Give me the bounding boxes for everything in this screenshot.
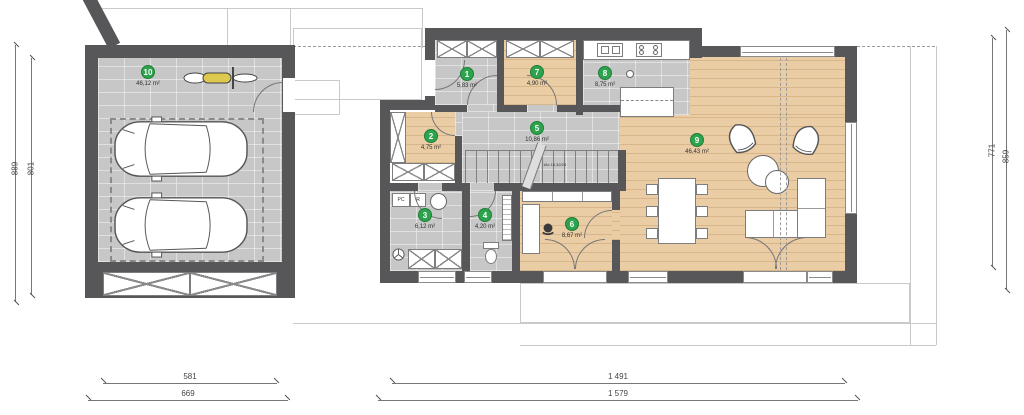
roof-outline-right <box>936 46 937 345</box>
roof-outline-line <box>290 8 291 46</box>
partition <box>618 150 626 191</box>
wardrobe-band <box>522 191 612 202</box>
door-opening-floor <box>527 105 557 112</box>
door-opening-floor <box>455 112 462 136</box>
appliance-pc-label: PC <box>392 193 410 207</box>
dining-chair <box>696 184 708 195</box>
room-area-5: 10,86 m² <box>513 137 561 143</box>
house-wall-bottom <box>456 271 464 283</box>
house-wall-bottom <box>668 271 743 283</box>
wardrobe <box>467 40 497 58</box>
house-wall-right <box>845 46 857 122</box>
window <box>845 122 857 214</box>
partition <box>497 105 527 112</box>
room-badge-8: 8 <box>598 66 612 80</box>
room-area-10: 46,12 m² <box>124 81 172 87</box>
house-wall-top <box>425 28 702 40</box>
toilet-tank <box>483 242 499 249</box>
room-area-6: 8,67 m² <box>548 233 596 239</box>
dining-chair <box>696 228 708 239</box>
partition <box>497 40 504 105</box>
room-area-3: 6,12 m² <box>401 224 449 230</box>
house-wall-bottom <box>607 271 628 283</box>
room-area-7: 4,90 m² <box>513 81 561 87</box>
house-wall-top <box>690 46 740 57</box>
window <box>418 271 456 283</box>
partition <box>512 183 520 271</box>
house-wall-bottom <box>833 271 857 283</box>
house-wall-bottom <box>492 271 543 283</box>
stove-burner <box>639 50 644 55</box>
partition <box>455 136 462 183</box>
room-badge-2: 2 <box>424 129 438 143</box>
partition <box>435 105 467 112</box>
room-badge-7: 7 <box>530 65 544 79</box>
window <box>464 271 492 283</box>
terrace-outline <box>520 283 910 323</box>
wardrobe <box>392 163 424 181</box>
roof-outline-line <box>422 8 423 48</box>
appliance-r-label: R <box>410 193 426 207</box>
wardrobe <box>540 40 574 58</box>
partition <box>380 183 418 191</box>
zone-dashed-line <box>786 58 787 270</box>
floor-plan: 18x 18,32/25 PC R 1 5,83 m² 2 4,75 <box>0 0 1024 415</box>
room-area-8: 8,75 m² <box>581 82 629 88</box>
house-wall-left-lower <box>380 100 390 283</box>
door-opening-floor <box>467 105 497 112</box>
entry-door-opening <box>425 60 435 96</box>
wardrobe <box>506 40 540 58</box>
stairs-note: 18x 18,32/25 <box>543 162 583 167</box>
room-badge-10: 10 <box>141 65 155 79</box>
desk <box>522 204 540 254</box>
roof-outline-line <box>227 8 228 46</box>
dim-line-house-inner <box>392 383 845 384</box>
room-area-9: 46,43 m² <box>673 149 721 155</box>
garage-side-door-opening <box>283 78 295 112</box>
partition <box>557 105 620 112</box>
dim-line-house-outer <box>378 400 858 401</box>
dining-table <box>658 178 696 244</box>
partition <box>612 240 620 271</box>
room-badge-4: 4 <box>478 208 492 222</box>
motorcycle-icon <box>183 63 259 93</box>
floor-drain-icon <box>392 248 405 261</box>
house-wall-jog <box>380 100 435 110</box>
roof-outline-right <box>910 46 911 345</box>
dining-chair <box>646 206 658 217</box>
wardrobe <box>424 163 455 181</box>
floor-drain <box>626 70 634 78</box>
room-badge-9: 9 <box>690 133 704 147</box>
kitchen-upper-cabinet-dashed <box>621 88 673 101</box>
radiator <box>502 195 512 241</box>
partition <box>576 40 583 115</box>
window <box>628 271 668 283</box>
dim-label-left-outer: 889 <box>11 155 20 183</box>
sofa-cushion-line <box>798 208 825 209</box>
dim-label-right-inner: 771 <box>988 137 997 165</box>
sofa-cushion-line <box>773 211 774 237</box>
room-area-1: 5,83 m² <box>443 83 491 89</box>
terrace-line <box>520 345 936 346</box>
dim-line-garage-outer <box>88 400 288 401</box>
car-icon <box>112 192 250 258</box>
stove-burner <box>653 50 658 55</box>
dim-line-garage-inner <box>103 383 277 384</box>
porch-outline <box>293 80 340 115</box>
roof-outline-top <box>88 8 422 9</box>
dining-chair <box>696 206 708 217</box>
wardrobe <box>390 112 406 163</box>
cabinet <box>435 249 462 269</box>
cabinet <box>408 249 435 269</box>
room-badge-1: 1 <box>460 67 474 81</box>
garage-door-panel <box>190 272 277 296</box>
garage-door-panel <box>103 272 190 296</box>
door-opening-floor <box>612 210 620 240</box>
dim-label-garage-inner: 581 <box>140 372 240 381</box>
dining-chair <box>646 228 658 239</box>
kitchen-sink-bowl <box>601 46 609 54</box>
room-badge-3: 3 <box>418 208 432 222</box>
window <box>740 46 835 57</box>
french-door-opening <box>543 271 607 283</box>
car-icon <box>112 116 250 182</box>
kitchen-sink-bowl <box>612 46 620 54</box>
zone-dashed-line <box>780 58 781 270</box>
dining-chair <box>646 184 658 195</box>
dim-label-house-outer: 1 579 <box>568 389 668 398</box>
terrace-line <box>293 323 936 324</box>
french-door-opening <box>743 271 807 283</box>
wardrobe <box>437 40 467 58</box>
room-badge-5: 5 <box>530 121 544 135</box>
toilet-bowl <box>485 249 497 264</box>
room-area-4: 4,20 m² <box>461 224 509 230</box>
window <box>807 271 833 283</box>
room-9-floor <box>690 57 845 115</box>
room-badge-6: 6 <box>565 217 579 231</box>
room-area-2: 4,75 m² <box>407 145 455 151</box>
door-opening-floor <box>418 183 442 191</box>
dim-label-left-inner: 801 <box>27 155 36 183</box>
door-opening-floor <box>470 183 494 191</box>
dim-label-garage-outer: 669 <box>138 389 238 398</box>
dim-label-house-inner: 1 491 <box>568 372 668 381</box>
dim-label-right-outer: 859 <box>1002 143 1011 171</box>
